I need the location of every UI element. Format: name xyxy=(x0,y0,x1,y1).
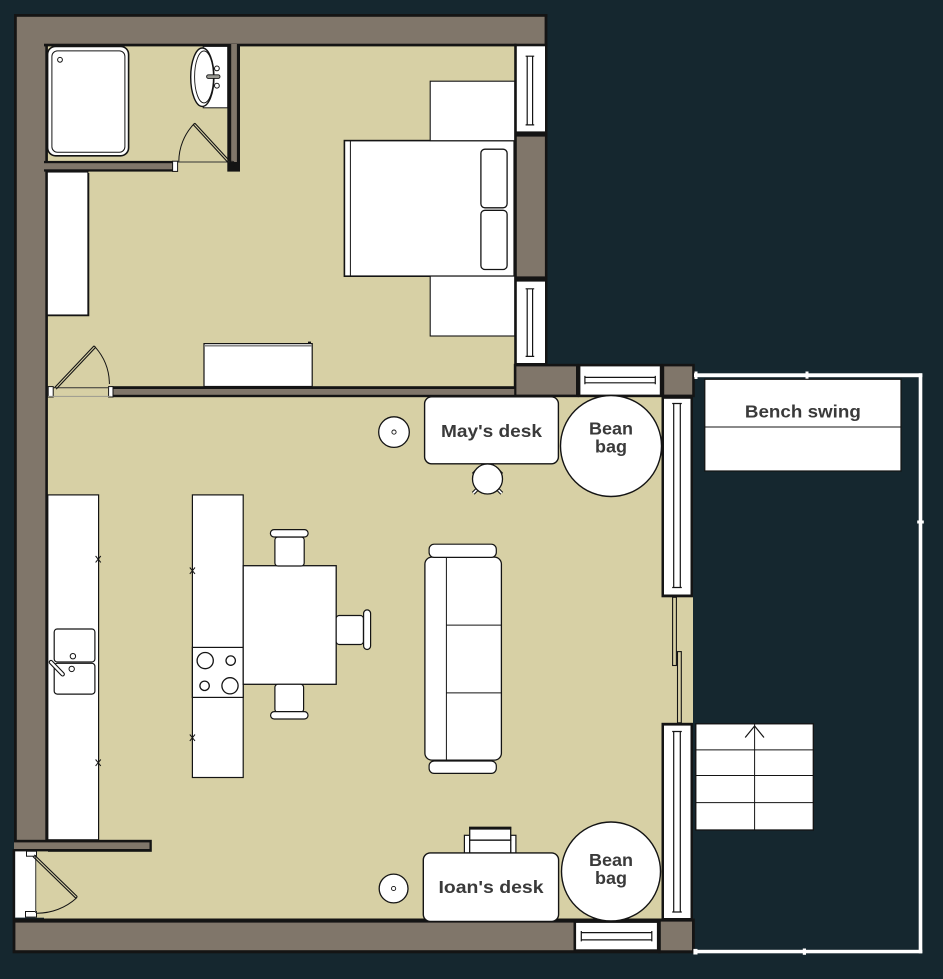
svg-text:Ioan's desk: Ioan's desk xyxy=(439,877,544,897)
svg-text:Bench swing: Bench swing xyxy=(745,402,861,422)
svg-text:bag: bag xyxy=(595,437,627,457)
svg-text:bag: bag xyxy=(595,868,627,888)
svg-text:May's desk: May's desk xyxy=(441,421,542,441)
svg-text:Bean: Bean xyxy=(589,419,633,439)
svg-text:Bean: Bean xyxy=(589,850,633,870)
